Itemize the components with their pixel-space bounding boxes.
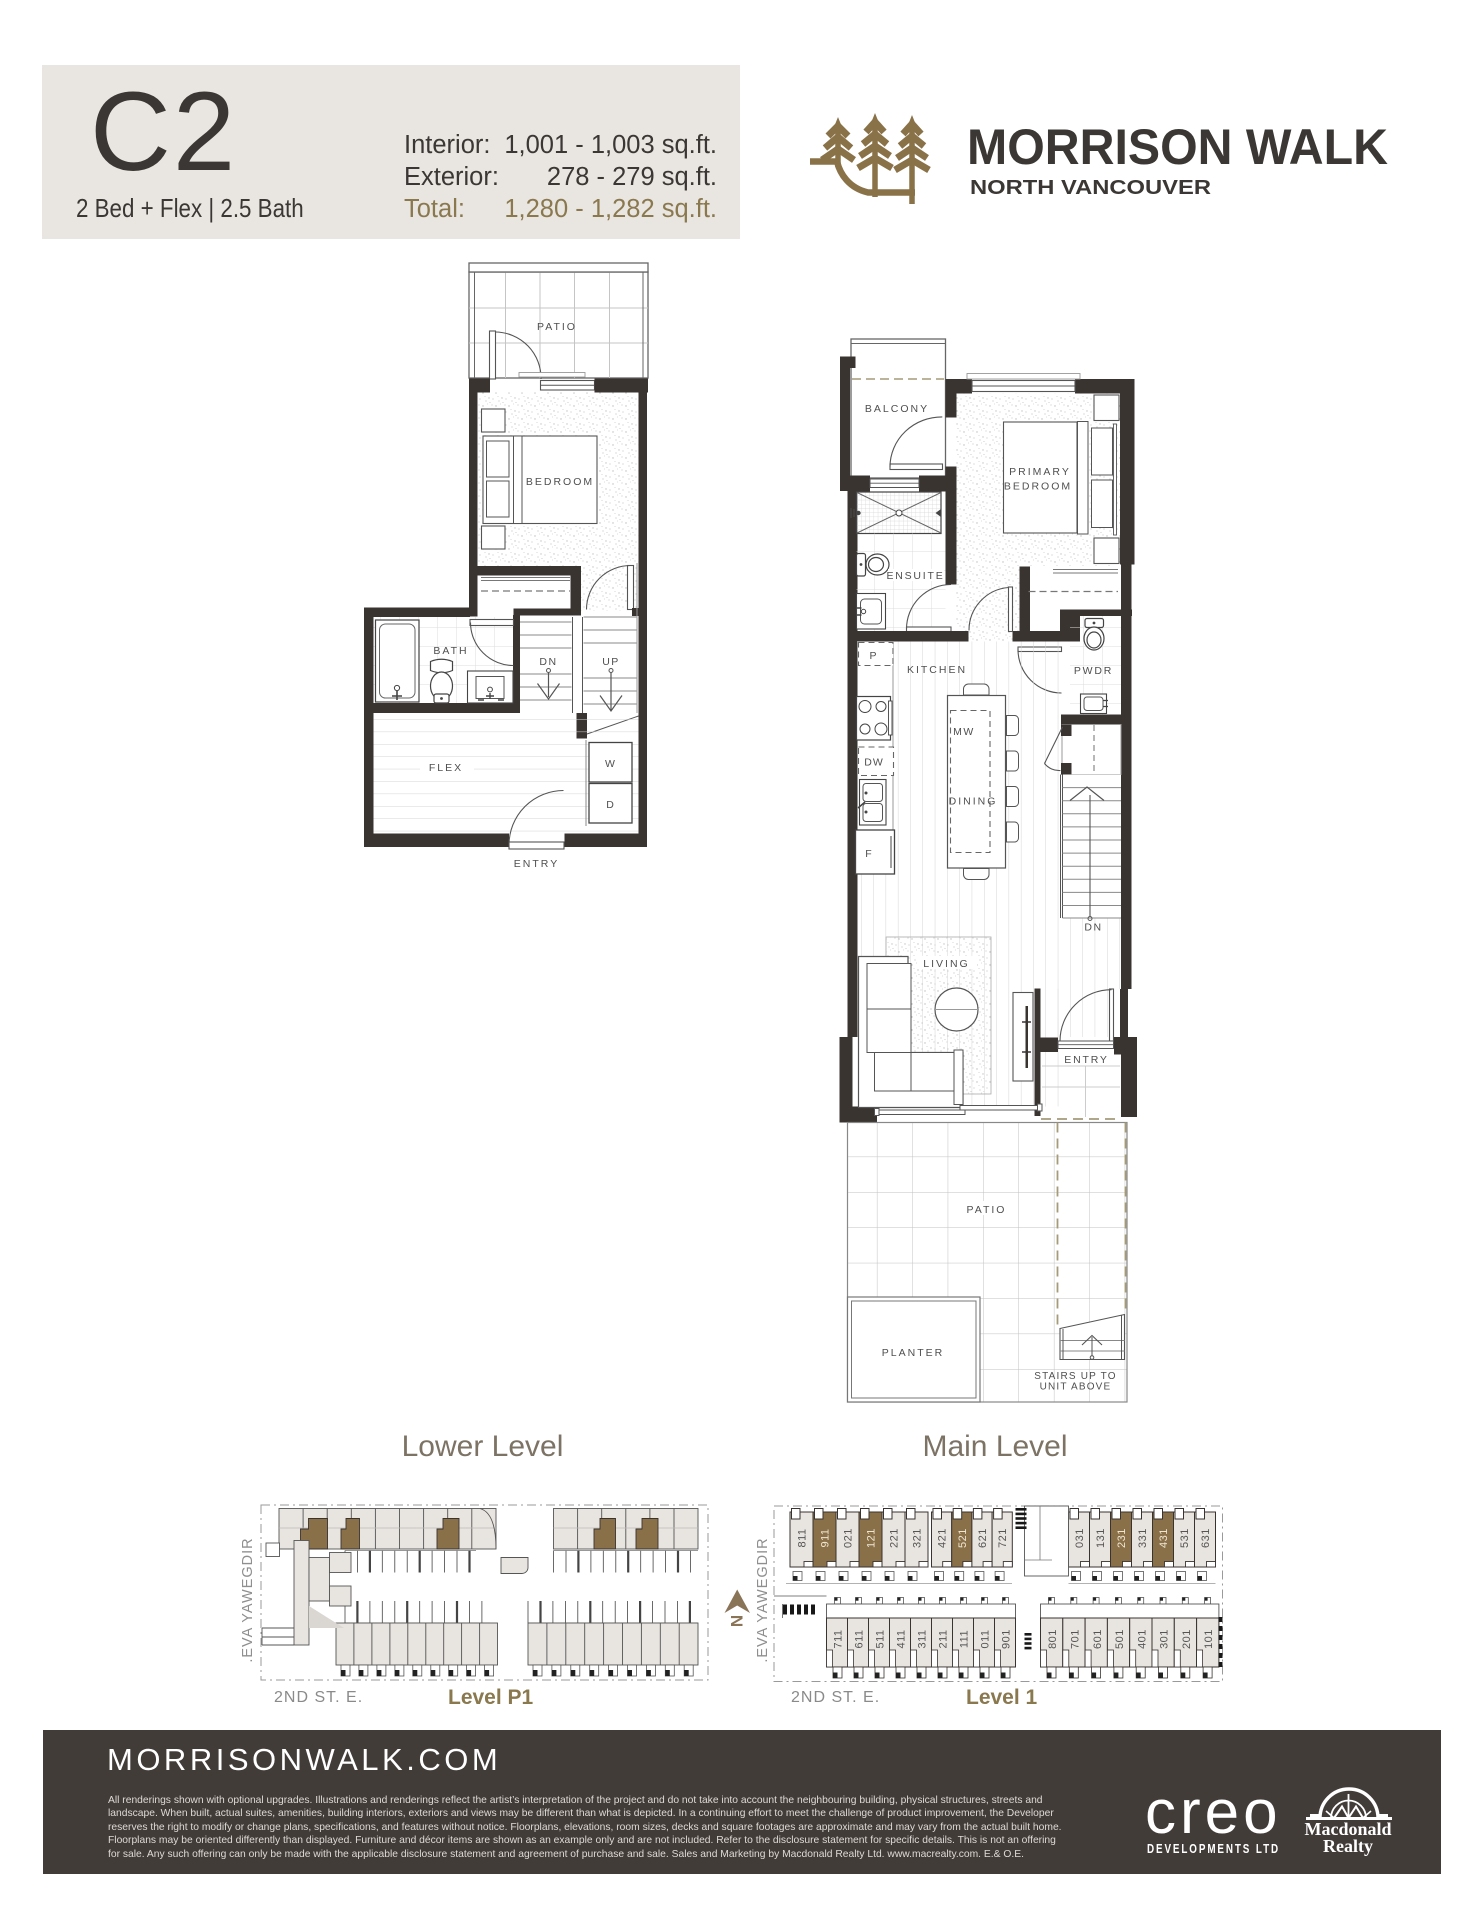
svg-text:421: 421 bbox=[937, 1528, 949, 1548]
svg-text:401: 401 bbox=[1136, 1629, 1148, 1649]
svg-text:MORRISON WALK: MORRISON WALK bbox=[967, 119, 1388, 175]
svg-text:501: 501 bbox=[1114, 1629, 1126, 1649]
svg-text:331: 331 bbox=[1137, 1528, 1149, 1548]
svg-text:KITCHEN: KITCHEN bbox=[907, 664, 967, 676]
svg-text:701: 701 bbox=[1070, 1629, 1082, 1649]
svg-text:PLANTER: PLANTER bbox=[882, 1347, 944, 1359]
svg-text:PWDR: PWDR bbox=[1074, 665, 1113, 677]
svg-text:ENTRY: ENTRY bbox=[1064, 1054, 1108, 1066]
svg-text:DN: DN bbox=[539, 656, 557, 668]
svg-text:MW: MW bbox=[953, 726, 975, 738]
svg-text:031: 031 bbox=[1074, 1528, 1086, 1548]
svg-text:021: 021 bbox=[843, 1528, 855, 1548]
svg-text:901: 901 bbox=[1001, 1629, 1013, 1649]
svg-text:611: 611 bbox=[854, 1629, 866, 1648]
svg-text:311: 311 bbox=[917, 1629, 929, 1648]
svg-text:431: 431 bbox=[1158, 1528, 1170, 1548]
svg-text:231: 231 bbox=[1116, 1528, 1128, 1548]
svg-text:DEVELOPMENTS LTD: DEVELOPMENTS LTD bbox=[1147, 1842, 1280, 1856]
svg-text:201: 201 bbox=[1181, 1629, 1193, 1649]
svg-text:DN: DN bbox=[1084, 922, 1102, 934]
svg-text:W: W bbox=[605, 758, 616, 770]
svg-text:121: 121 bbox=[866, 1528, 878, 1548]
svg-text:DINING: DINING bbox=[949, 796, 998, 808]
svg-text:BALCONY: BALCONY bbox=[865, 403, 929, 415]
svg-text:711: 711 bbox=[833, 1629, 845, 1648]
svg-text:801: 801 bbox=[1047, 1629, 1059, 1649]
svg-text:BEDROOM: BEDROOM bbox=[1004, 481, 1072, 493]
svg-text:UNIT ABOVE: UNIT ABOVE bbox=[1040, 1382, 1112, 1393]
svg-text:721: 721 bbox=[997, 1528, 1009, 1548]
svg-text:811: 811 bbox=[797, 1528, 809, 1547]
svg-text:ENTRY: ENTRY bbox=[514, 858, 559, 870]
svg-text:ENSUITE: ENSUITE bbox=[886, 570, 944, 582]
svg-text:321: 321 bbox=[912, 1528, 924, 1548]
svg-text:PRIMARY: PRIMARY bbox=[1009, 466, 1071, 478]
svg-text:FLEX: FLEX bbox=[429, 762, 463, 774]
svg-text:011: 011 bbox=[980, 1629, 992, 1648]
svg-text:STAIRS UP TO: STAIRS UP TO bbox=[1034, 1371, 1117, 1382]
svg-text:BEDROOM: BEDROOM bbox=[526, 476, 594, 488]
svg-text:UP: UP bbox=[602, 656, 620, 668]
svg-text:NORTH VANCOUVER: NORTH VANCOUVER bbox=[970, 177, 1212, 199]
svg-text:LIVING: LIVING bbox=[923, 958, 969, 970]
svg-text:511: 511 bbox=[875, 1629, 887, 1648]
svg-text:PATIO: PATIO bbox=[967, 1204, 1007, 1216]
svg-text:.EVA YAWEGDIR: .EVA YAWEGDIR bbox=[755, 1537, 771, 1662]
svg-text:101: 101 bbox=[1203, 1629, 1215, 1649]
svg-text:601: 601 bbox=[1092, 1629, 1104, 1649]
svg-text:211: 211 bbox=[938, 1629, 950, 1648]
svg-text:DW: DW bbox=[864, 757, 884, 769]
svg-text:PATIO: PATIO bbox=[537, 321, 577, 333]
svg-text:531: 531 bbox=[1179, 1528, 1191, 1548]
svg-text:301: 301 bbox=[1159, 1629, 1171, 1649]
svg-text:creo: creo bbox=[1145, 1780, 1282, 1847]
svg-text:BATH: BATH bbox=[433, 645, 468, 657]
svg-text:411: 411 bbox=[896, 1629, 908, 1648]
svg-text:911: 911 bbox=[820, 1528, 832, 1547]
svg-text:621: 621 bbox=[977, 1528, 989, 1548]
svg-text:P: P bbox=[869, 650, 877, 662]
svg-text:F: F bbox=[865, 848, 872, 860]
svg-text:631: 631 bbox=[1200, 1528, 1212, 1548]
svg-text:111: 111 bbox=[959, 1630, 971, 1648]
svg-text:D: D bbox=[606, 799, 615, 811]
svg-text:521: 521 bbox=[957, 1528, 969, 1548]
svg-text:N: N bbox=[728, 1615, 747, 1627]
svg-text:.EVA YAWEGDIR: .EVA YAWEGDIR bbox=[240, 1537, 256, 1662]
svg-text:Realty: Realty bbox=[1323, 1836, 1373, 1856]
svg-text:131: 131 bbox=[1095, 1528, 1107, 1548]
svg-text:221: 221 bbox=[889, 1528, 901, 1548]
